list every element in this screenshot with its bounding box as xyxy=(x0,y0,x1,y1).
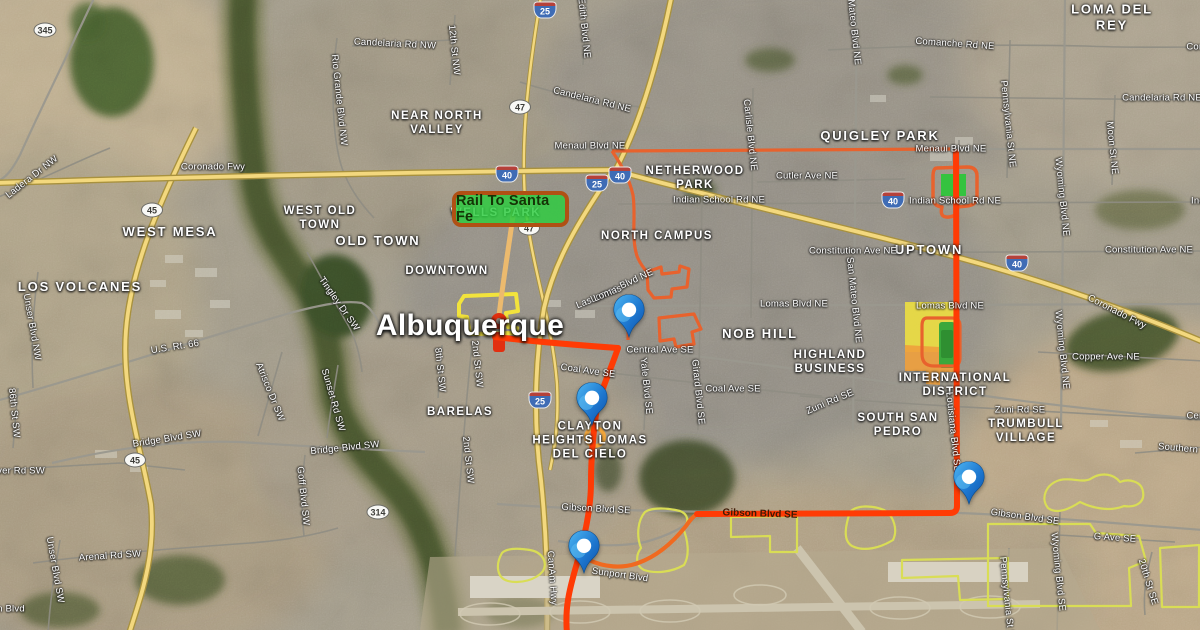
pin-sunport[interactable] xyxy=(566,529,602,575)
pin-clayton-heights[interactable] xyxy=(574,381,610,427)
banner-label: Rail To Santa Fe xyxy=(456,193,565,225)
pin-central-girard[interactable] xyxy=(611,293,647,339)
map-canvas[interactable]: AlbuquerqueNEAR NORTH VALLEYWEST OLD TOW… xyxy=(0,0,1200,630)
pin-center-dot xyxy=(577,539,591,553)
route-menaul xyxy=(612,149,950,151)
airport xyxy=(420,548,1100,630)
pin-center-dot xyxy=(585,391,599,405)
pin-gibson-louisiana[interactable] xyxy=(951,460,987,506)
pin-center-dot xyxy=(622,303,636,317)
rail-to-santa-fe-banner[interactable]: Rail To Santa Fe xyxy=(452,191,569,227)
pin-center-dot xyxy=(962,470,976,484)
